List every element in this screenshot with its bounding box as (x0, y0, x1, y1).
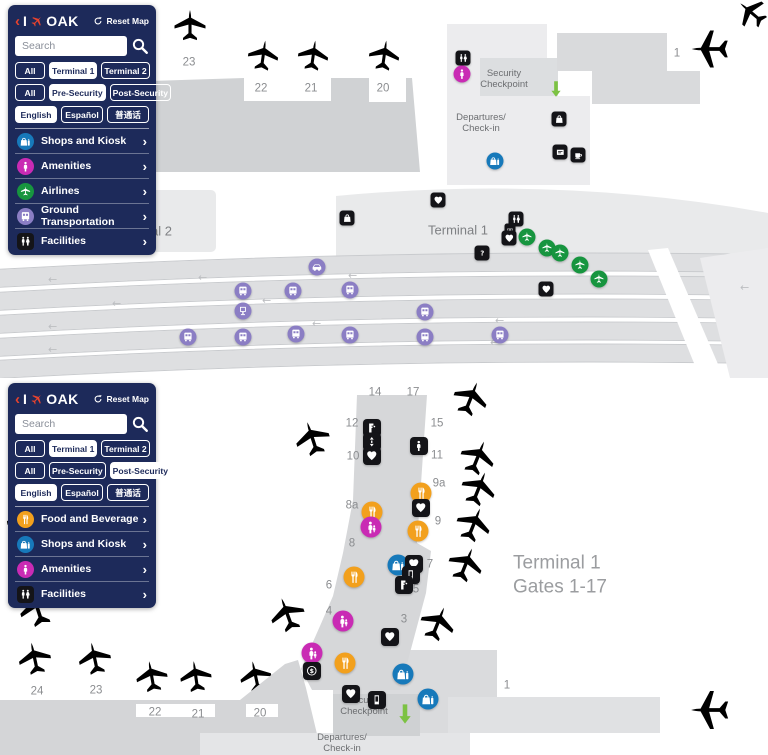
heart-icon (366, 450, 378, 462)
bus-marker[interactable] (285, 283, 302, 300)
svg-text:←: ← (48, 320, 57, 333)
search-input[interactable] (15, 36, 127, 56)
category-menu: Shops and Kiosk›Amenities›Airlines›Groun… (15, 128, 149, 253)
plane-icon (28, 12, 46, 30)
plane-marker[interactable] (572, 257, 589, 274)
brand-oak: OAK (46, 13, 78, 29)
shops-icon (17, 133, 34, 150)
search-icon[interactable] (131, 415, 149, 433)
menu-item-airlines[interactable]: Airlines› (15, 179, 149, 204)
shops-marker[interactable] (418, 689, 439, 710)
fountain-icon (398, 579, 410, 591)
back-chevron-icon[interactable]: ‹ (15, 14, 20, 29)
map-sidebar: ‹ I OAK Reset Map AllTerminal 1Terminal … (8, 5, 156, 255)
heart-icon (384, 631, 396, 643)
svg-text:←: ← (48, 343, 57, 356)
shops-marker[interactable] (393, 664, 414, 685)
bus-marker[interactable] (180, 329, 197, 346)
filter-row: AllPre-SecurityPost-Security (15, 462, 149, 479)
gate-label-23: 23 (90, 684, 103, 697)
ticket-icon (555, 147, 565, 157)
gate-label-22: 22 (149, 706, 162, 719)
chevron-right-icon: › (143, 209, 149, 224)
menu-item-label: Shops and Kiosk (41, 135, 126, 147)
svg-text:←: ← (495, 314, 504, 327)
bag-icon (554, 114, 564, 124)
filter-button-espa-ol[interactable]: Español (61, 484, 103, 501)
dollar-icon (306, 665, 318, 677)
chevron-right-icon: › (143, 562, 149, 577)
brand-logo: I OAK (23, 13, 79, 29)
gate-label-9a: 9a (433, 477, 446, 490)
arrowdown-marker[interactable] (395, 704, 416, 725)
map-label-departures-check-in: Departures/ Check-in (456, 113, 506, 135)
filter-button-english[interactable]: English (15, 106, 57, 123)
bus-icon (495, 330, 506, 341)
plane-icon (594, 274, 605, 285)
heart-icon (433, 195, 443, 205)
filter-button-espa-ol[interactable]: Español (61, 106, 103, 123)
reset-icon (93, 16, 103, 26)
map-label-terminal-1: Terminal 1 (428, 224, 488, 239)
heart-marker[interactable] (363, 447, 381, 465)
heart-icon (345, 688, 357, 700)
bus-marker[interactable] (288, 326, 305, 343)
mother-icon (364, 520, 377, 533)
person-marker[interactable] (410, 437, 428, 455)
coffee-icon (573, 150, 583, 160)
gate-label-6: 6 (326, 579, 332, 592)
bus-icon (420, 307, 431, 318)
plane-icon (28, 390, 46, 408)
kiosk-icon (238, 306, 249, 317)
bag-marker[interactable] (552, 112, 567, 127)
gate-label-1: 1 (674, 47, 680, 60)
heart-marker[interactable] (502, 231, 517, 246)
scan-marker[interactable] (368, 691, 386, 709)
fork-icon (338, 656, 351, 669)
heart-marker[interactable] (431, 193, 446, 208)
fork-icon (17, 511, 34, 528)
map-label-security-checkpoint: Security Checkpoint (480, 69, 528, 91)
mother-marker[interactable] (361, 517, 382, 538)
menu-item-facilities[interactable]: Facilities› (15, 229, 149, 253)
menu-item-label: Facilities (41, 588, 86, 600)
fork-icon (414, 486, 427, 499)
mother-marker[interactable] (302, 643, 323, 664)
bus-icon (291, 329, 302, 340)
svg-text:←: ← (198, 271, 207, 284)
shops-marker[interactable] (487, 153, 504, 170)
heart-icon (504, 233, 514, 243)
brand-oak: OAK (46, 391, 78, 407)
bus-icon (238, 332, 249, 343)
gate-label-21: 21 (305, 82, 318, 95)
svg-text:←: ← (312, 317, 321, 330)
back-chevron-icon[interactable]: ‹ (15, 392, 20, 407)
restroom-icon (17, 233, 34, 250)
svg-text:←: ← (740, 281, 749, 294)
filter-button-pre-security[interactable]: Pre-Security (49, 462, 106, 479)
menu-item-label: Facilities (41, 235, 86, 247)
map-label-departures-check-in: Departures/ Check-in (317, 733, 367, 755)
amenities-icon (17, 561, 34, 578)
reset-map-label: Reset Map (106, 394, 149, 404)
terminal1-map-panel: 1417121510119a8a987654312423222120Termin… (0, 378, 768, 755)
menu-item-label: Shops and Kiosk (41, 538, 126, 550)
reset-map-button[interactable]: Reset Map (93, 394, 149, 404)
menu-item-amenities[interactable]: Amenities› (15, 557, 149, 582)
bus-icon (420, 332, 431, 343)
bus-icon (238, 286, 249, 297)
mother-marker[interactable] (333, 611, 354, 632)
gate-label-22: 22 (255, 82, 268, 95)
heart-marker[interactable] (539, 282, 554, 297)
chevron-right-icon: › (143, 134, 149, 149)
chevron-right-icon: › (143, 512, 149, 527)
car-marker[interactable] (309, 259, 326, 276)
bus-icon (288, 286, 299, 297)
bus-marker[interactable] (235, 329, 252, 346)
fork-marker[interactable] (335, 653, 356, 674)
plane-icon (17, 183, 34, 200)
heart-marker[interactable] (381, 628, 399, 646)
fork-marker[interactable] (408, 521, 429, 542)
bus-icon (17, 208, 34, 225)
brand-logo: I OAK (23, 391, 79, 407)
filter-button-pre-security[interactable]: Pre-Security (49, 84, 106, 101)
gate-label-21: 21 (192, 708, 205, 721)
menu-item-shops-and-kiosk[interactable]: Shops and Kiosk› (15, 532, 149, 557)
fork-icon (411, 524, 424, 537)
menu-item-facilities[interactable]: Facilities› (15, 582, 149, 606)
restroom-icon (17, 586, 34, 603)
filter-row: EnglishEspañol普通话 (15, 484, 149, 501)
menu-item-label: Airlines (41, 185, 80, 197)
fountain-marker[interactable] (395, 576, 413, 594)
kiosk-marker[interactable] (235, 303, 252, 320)
fork-icon (347, 570, 360, 583)
chevron-right-icon: › (143, 537, 149, 552)
plane-icon (575, 260, 586, 271)
bag-icon (342, 213, 352, 223)
sidebar-header: ‹ I OAK Reset Map (15, 11, 149, 31)
plane-marker[interactable] (552, 245, 569, 262)
heart-icon (541, 284, 551, 294)
gate-label-7: 7 (427, 558, 433, 571)
gate-label-9: 9 (435, 515, 441, 528)
chevron-right-icon: › (143, 234, 149, 249)
filter-button-item[interactable]: 普通话 (107, 106, 149, 123)
restroom-marker[interactable] (456, 51, 471, 66)
gate-label-8a: 8a (346, 499, 359, 512)
menu-item-shops-and-kiosk[interactable]: Shops and Kiosk› (15, 129, 149, 154)
menu-item-food-and-beverage[interactable]: Food and Beverage› (15, 507, 149, 532)
chevron-right-icon: › (143, 159, 149, 174)
restroom-icon (511, 214, 521, 224)
mother-icon (336, 614, 349, 627)
bus-icon (183, 332, 194, 343)
bus-marker[interactable] (492, 327, 509, 344)
shops-icon (490, 156, 501, 167)
filter-button-english[interactable]: English (15, 484, 57, 501)
shops-icon (421, 692, 434, 705)
category-menu: Food and Beverage›Shops and Kiosk›Amenit… (15, 506, 149, 606)
gate-label-24: 24 (31, 685, 44, 698)
menu-item-label: Amenities (41, 563, 91, 575)
person-icon (413, 440, 425, 452)
map-sidebar: ‹ I OAK Reset Map AllTerminal 1Terminal … (8, 383, 156, 608)
gate-label-10: 10 (347, 450, 360, 463)
bus-marker[interactable] (235, 283, 252, 300)
scan-icon (371, 694, 383, 706)
search-input[interactable] (15, 414, 127, 434)
gate-label-11: 11 (431, 449, 443, 462)
menu-item-label: Ground Transportation (41, 204, 143, 228)
heart-marker[interactable] (342, 685, 360, 703)
plane-icon (522, 232, 533, 243)
plane-marker[interactable] (519, 229, 536, 246)
person-icon (457, 69, 468, 80)
svg-text:←: ← (348, 269, 357, 282)
mother-icon (305, 646, 318, 659)
gate-label-23: 23 (183, 56, 196, 69)
sidebar-header: ‹ I OAK Reset Map (15, 389, 149, 409)
ticket-marker[interactable] (553, 145, 568, 160)
coffee-marker[interactable] (571, 148, 586, 163)
gate-label-1: 1 (504, 679, 510, 692)
bag-marker[interactable] (340, 211, 355, 226)
car-icon (312, 262, 323, 273)
arrowdown-icon (548, 81, 565, 98)
gate-label-4: 4 (326, 605, 332, 618)
shops-icon (17, 536, 34, 553)
svg-text:←: ← (48, 273, 57, 286)
filter-button-terminal-1[interactable]: Terminal 1 (49, 62, 97, 79)
dollar-marker[interactable] (303, 662, 321, 680)
filter-button-all[interactable]: All (15, 62, 45, 79)
filter-row: AllTerminal 1Terminal 2 (15, 440, 149, 457)
chevron-right-icon: › (143, 587, 149, 602)
menu-item-ground-transportation[interactable]: Ground Transportation› (15, 204, 149, 229)
amenities-icon (17, 158, 34, 175)
map-label-terminal-1-gates-1-17: Terminal 1 Gates 1-17 (513, 551, 607, 599)
gate-label-15: 15 (431, 417, 444, 430)
gate-label-3: 3 (401, 613, 407, 626)
bus-marker[interactable] (417, 329, 434, 346)
overview-map-panel: ←←← ←← ←←← ←←← 232221201Security Checkpo… (0, 0, 768, 378)
gate-label-14: 14 (369, 386, 382, 399)
filter-button-post-security[interactable]: Post-Security (110, 84, 171, 101)
svg-text:←: ← (112, 297, 121, 310)
bus-marker[interactable] (417, 304, 434, 321)
gate-label-17: 17 (407, 386, 420, 399)
filter-button-all[interactable]: All (15, 84, 45, 101)
fork-marker[interactable] (344, 567, 365, 588)
menu-item-label: Amenities (41, 160, 91, 172)
gate-label-8: 8 (349, 537, 355, 550)
restroom-icon (458, 53, 468, 63)
search-icon[interactable] (131, 37, 149, 55)
heart-icon (415, 502, 427, 514)
bus-marker[interactable] (342, 282, 359, 299)
filter-row: EnglishEspañol普通话 (15, 106, 149, 123)
menu-item-label: Food and Beverage (41, 513, 138, 525)
bus-icon (345, 330, 356, 341)
menu-item-amenities[interactable]: Amenities› (15, 154, 149, 179)
chevron-right-icon: › (143, 184, 149, 199)
bus-icon (345, 285, 356, 296)
filter-button-all[interactable]: All (15, 440, 45, 457)
gate-label-5: 5 (413, 583, 419, 596)
filter-button-terminal-1[interactable]: Terminal 1 (49, 440, 97, 457)
reset-map-label: Reset Map (106, 16, 149, 26)
question-marker[interactable] (475, 246, 490, 261)
gate-label-20: 20 (377, 82, 390, 95)
filter-row: AllPre-SecurityPost-Security (15, 84, 149, 101)
shops-icon (396, 667, 409, 680)
gate-label-20: 20 (254, 707, 267, 720)
question-icon (477, 248, 487, 258)
search-bar (15, 414, 149, 434)
svg-text:←: ← (262, 294, 271, 307)
filter-button-all[interactable]: All (15, 462, 45, 479)
filter-row: AllTerminal 1Terminal 2 (15, 62, 149, 79)
plane-icon (555, 248, 566, 259)
reset-icon (93, 394, 103, 404)
filter-button-terminal-2[interactable]: Terminal 2 (101, 62, 149, 79)
filter-button-post-security[interactable]: Post-Security (110, 462, 171, 479)
arrowdown-icon (395, 704, 416, 725)
plane-marker[interactable] (591, 271, 608, 288)
arrowdown-marker[interactable] (548, 81, 565, 98)
gate-label-12: 12 (346, 417, 359, 430)
heart-marker[interactable] (412, 499, 430, 517)
search-bar (15, 36, 149, 56)
bus-marker[interactable] (342, 327, 359, 344)
filter-groups: AllTerminal 1Terminal 2AllPre-SecurityPo… (15, 440, 149, 501)
filter-button-item[interactable]: 普通话 (107, 484, 149, 501)
person-marker[interactable] (454, 66, 471, 83)
reset-map-button[interactable]: Reset Map (93, 16, 149, 26)
filter-button-terminal-2[interactable]: Terminal 2 (101, 440, 149, 457)
filter-groups: AllTerminal 1Terminal 2AllPre-SecurityPo… (15, 62, 149, 123)
